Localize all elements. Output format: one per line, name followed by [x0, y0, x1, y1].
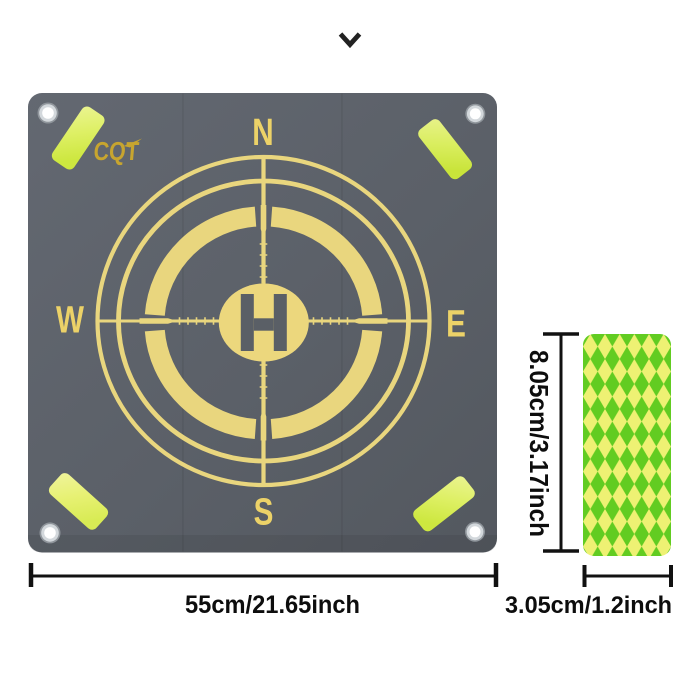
svg-text:N: N	[252, 112, 273, 154]
svg-text:S: S	[254, 491, 274, 533]
svg-text:3.05cm/1.2inch: 3.05cm/1.2inch	[505, 592, 672, 619]
svg-text:55cm/21.65inch: 55cm/21.65inch	[185, 591, 360, 619]
svg-text:CQT: CQT	[92, 137, 140, 166]
svg-text:E: E	[446, 303, 466, 345]
svg-text:8.05cm/3.17inch: 8.05cm/3.17inch	[524, 350, 554, 537]
svg-text:W: W	[56, 299, 85, 341]
